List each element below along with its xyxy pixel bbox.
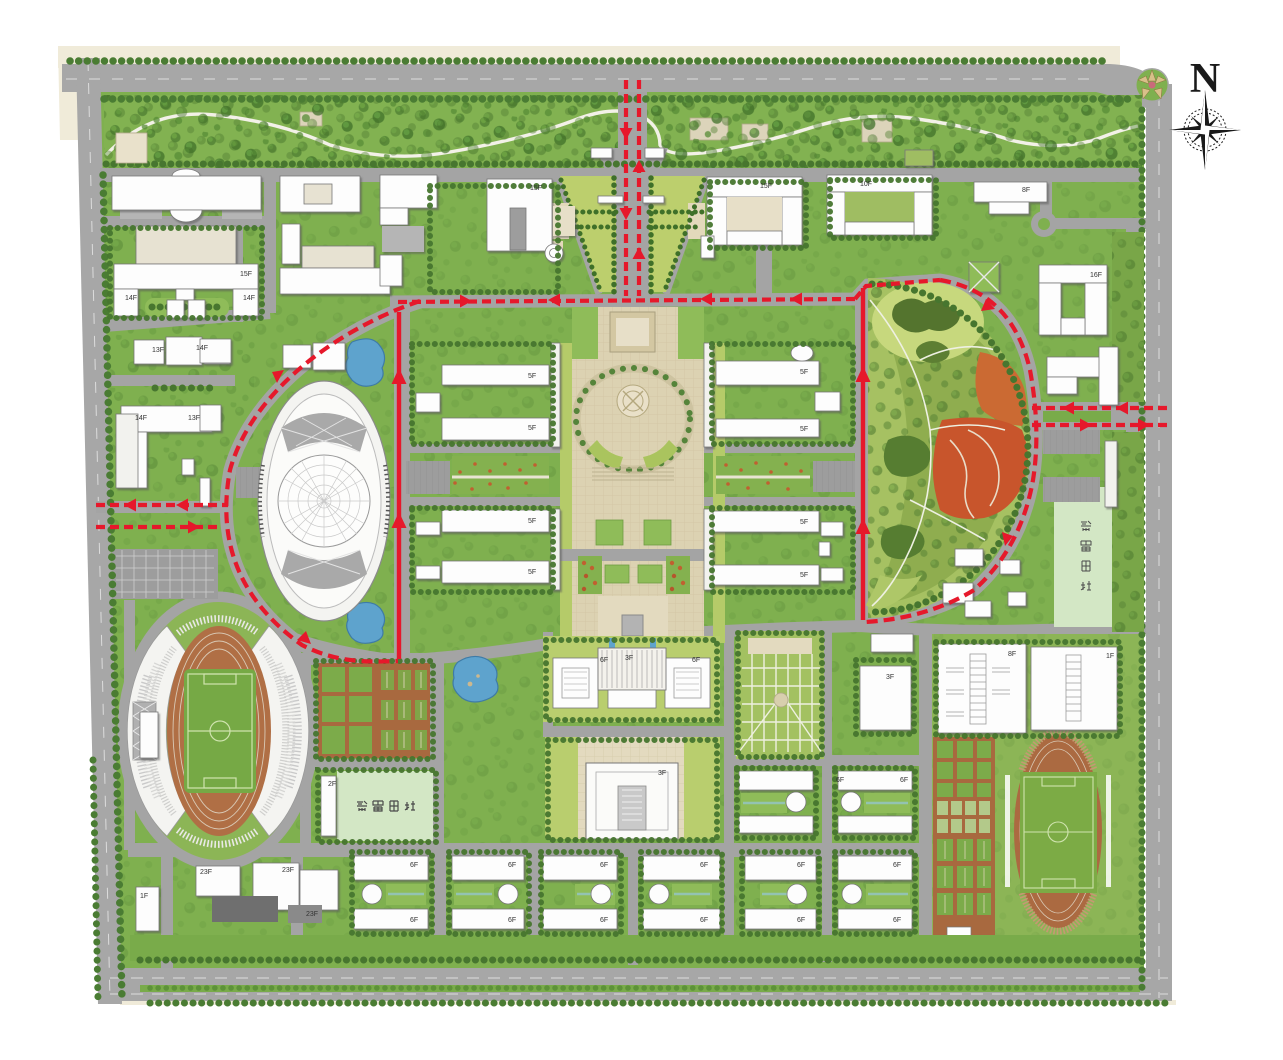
svg-text:23F: 23F bbox=[306, 911, 318, 918]
svg-text:6F: 6F bbox=[600, 657, 608, 664]
svg-text:5F: 5F bbox=[800, 426, 808, 433]
svg-text:15F: 15F bbox=[530, 185, 542, 192]
svg-text:1F: 1F bbox=[1106, 653, 1114, 660]
svg-text:6F: 6F bbox=[700, 862, 708, 869]
svg-text:13F: 13F bbox=[152, 347, 164, 354]
svg-text:5F: 5F bbox=[528, 518, 536, 525]
svg-text:6F: 6F bbox=[600, 862, 608, 869]
svg-text:5F: 5F bbox=[528, 373, 536, 380]
svg-text:5F: 5F bbox=[528, 425, 536, 432]
svg-text:23F: 23F bbox=[282, 867, 294, 874]
svg-text:14F: 14F bbox=[135, 415, 147, 422]
svg-text:10F: 10F bbox=[860, 181, 872, 188]
svg-text:2F: 2F bbox=[328, 781, 336, 788]
svg-text:6F: 6F bbox=[797, 862, 805, 869]
svg-text:6F: 6F bbox=[508, 917, 516, 924]
svg-text:6F: 6F bbox=[900, 777, 908, 784]
svg-text:6F: 6F bbox=[410, 917, 418, 924]
svg-text:6F: 6F bbox=[893, 862, 901, 869]
svg-text:14F: 14F bbox=[125, 295, 137, 302]
svg-text:13F: 13F bbox=[188, 415, 200, 422]
svg-text:6F: 6F bbox=[692, 657, 700, 664]
svg-text:8F: 8F bbox=[1022, 187, 1030, 194]
svg-text:5F: 5F bbox=[800, 519, 808, 526]
svg-text:5F: 5F bbox=[800, 572, 808, 579]
svg-text:23F: 23F bbox=[200, 869, 212, 876]
svg-text:6F: 6F bbox=[410, 862, 418, 869]
svg-text:8F: 8F bbox=[1008, 651, 1016, 658]
svg-text:3F: 3F bbox=[625, 655, 633, 662]
svg-text:14F: 14F bbox=[196, 345, 208, 352]
svg-text:5F: 5F bbox=[800, 369, 808, 376]
svg-text:6F: 6F bbox=[836, 777, 844, 784]
svg-text:15F: 15F bbox=[240, 271, 252, 278]
svg-text:1F: 1F bbox=[140, 893, 148, 900]
svg-text:15F: 15F bbox=[760, 183, 772, 190]
svg-text:6F: 6F bbox=[600, 917, 608, 924]
svg-text:6F: 6F bbox=[893, 917, 901, 924]
svg-text:6F: 6F bbox=[508, 862, 516, 869]
svg-text:16F: 16F bbox=[1090, 272, 1102, 279]
svg-text:14F: 14F bbox=[243, 295, 255, 302]
svg-text:3F: 3F bbox=[658, 770, 666, 777]
svg-text:6F: 6F bbox=[797, 917, 805, 924]
svg-text:5F: 5F bbox=[528, 569, 536, 576]
svg-text:6F: 6F bbox=[700, 917, 708, 924]
svg-text:3F: 3F bbox=[886, 674, 894, 681]
